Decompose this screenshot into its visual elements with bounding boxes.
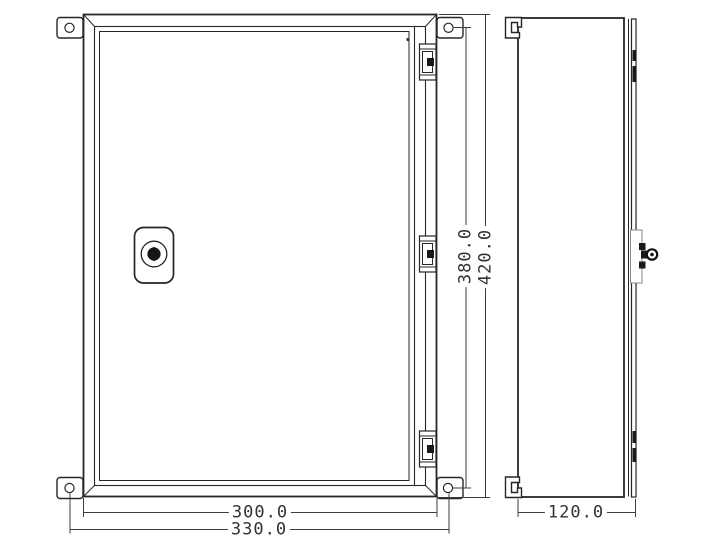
dim-overall-height-label: 420.0 [476, 226, 495, 288]
front-view [57, 15, 463, 499]
side-body-outline [518, 18, 624, 497]
technical-drawing-canvas: 300.0 330.0 380.0 420.0 120.0 [0, 0, 705, 553]
hinge-middle [420, 236, 437, 272]
dim-overall-width-label: 330.0 [228, 520, 290, 539]
dim-door-height-label: 380.0 [457, 225, 476, 287]
hinge-pin-icon [427, 445, 434, 453]
mounting-bracket-top-left [57, 18, 83, 39]
key-cylinder-icon [631, 230, 658, 283]
side-hinge-mark [633, 448, 637, 462]
door-pin-dot [406, 38, 409, 41]
side-hinge-mark [633, 66, 637, 82]
enclosure-drawing [0, 0, 705, 553]
door-lock-icon [135, 228, 174, 284]
side-hinge-mark [633, 50, 637, 61]
hinge-bottom [420, 431, 437, 467]
hinge-pin-icon [427, 58, 434, 66]
side-view [506, 18, 658, 498]
hinge-top [420, 44, 437, 80]
dim-depth-label: 120.0 [545, 503, 607, 522]
side-hinge-mark [633, 431, 637, 443]
hinge-pin-icon [427, 250, 434, 258]
